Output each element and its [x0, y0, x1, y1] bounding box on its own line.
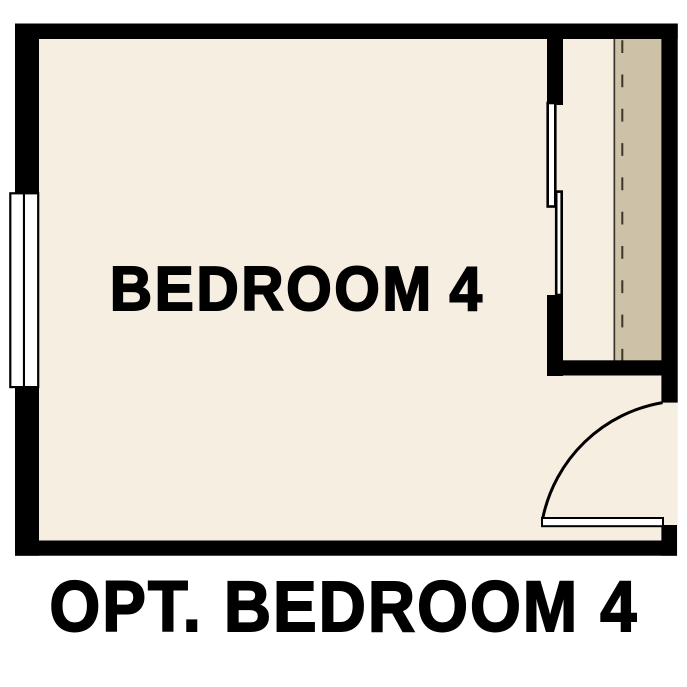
svg-text:BEDROOM 4: BEDROOM 4 [110, 255, 485, 324]
svg-text:OPT. BEDROOM 4: OPT. BEDROOM 4 [50, 567, 639, 646]
